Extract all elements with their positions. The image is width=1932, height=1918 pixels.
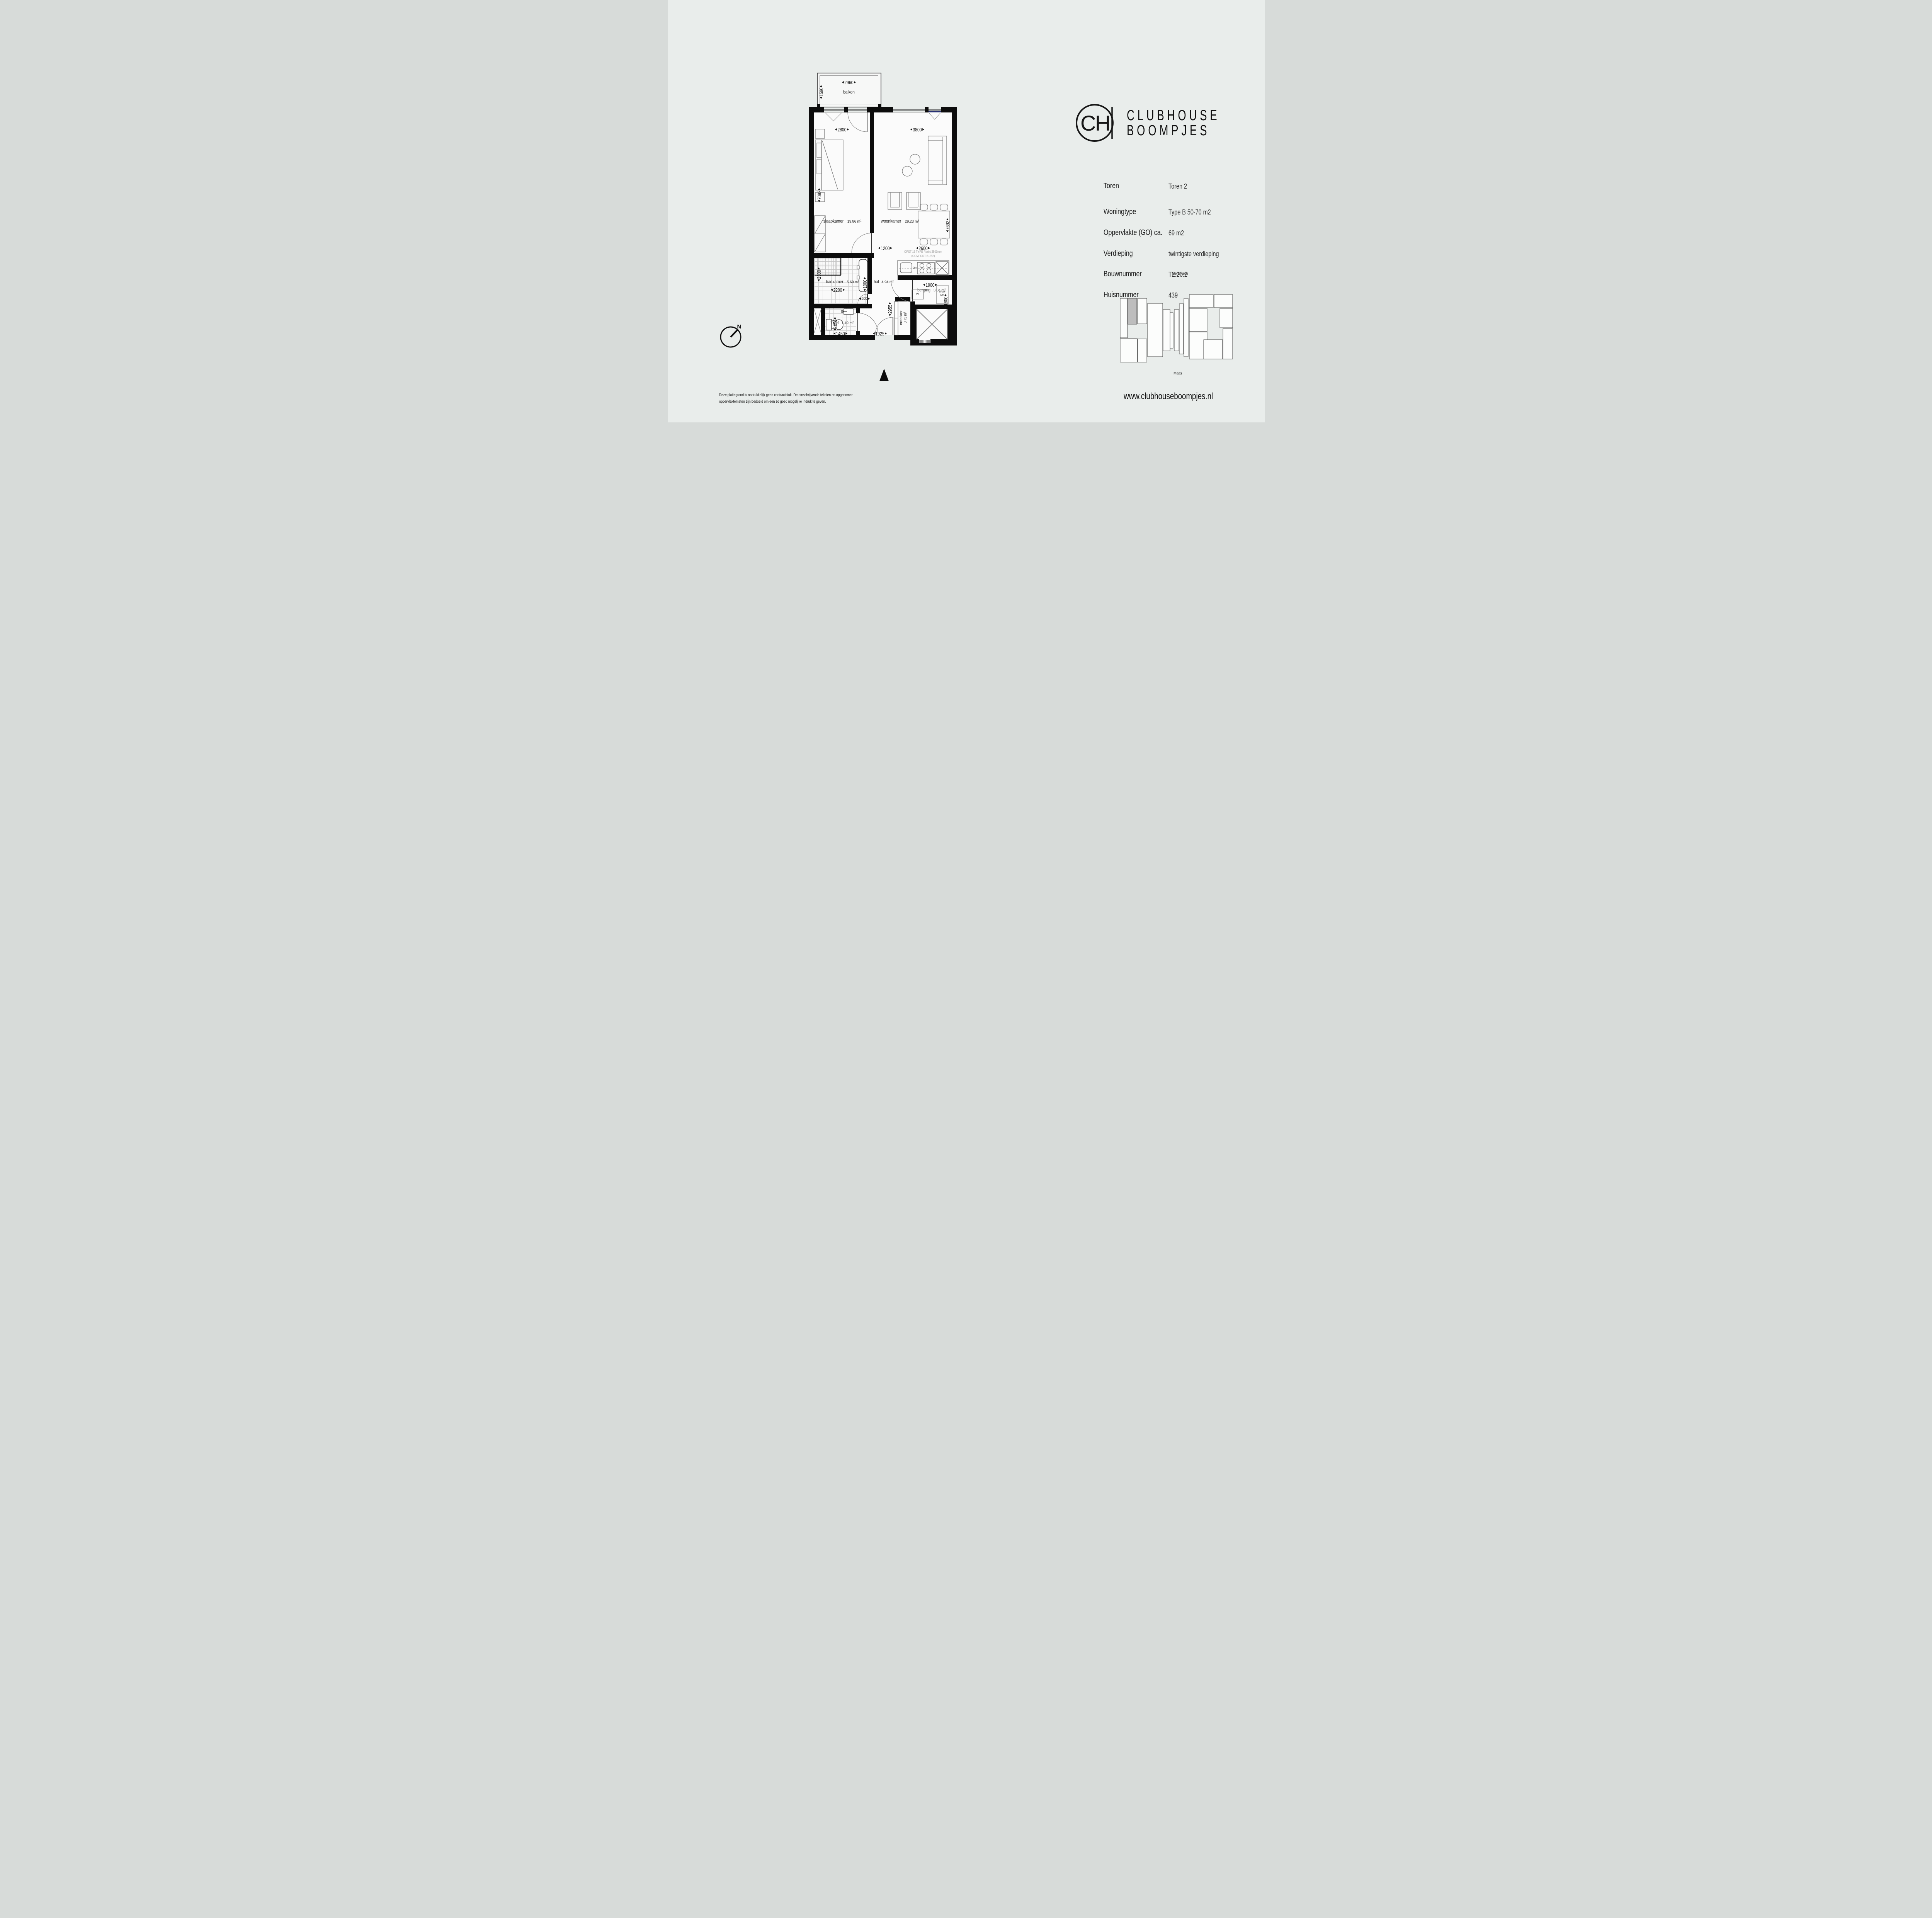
floorplan-sheet: balkon slaapkamer 19.86 m² woonkamer 29.… (668, 0, 1265, 422)
site-map (1118, 292, 1242, 363)
dim-berging-height: ◀1600▶ (941, 292, 948, 310)
brand-line1: CLUBHOUSE (1127, 108, 1220, 123)
dim-badkamer-height: ◀2300▶ (814, 265, 821, 283)
dim-hal-height: ◀2955▶ (885, 300, 893, 318)
logo-letter-h: H (1095, 111, 1111, 135)
dim-doorgang-height: ◀1000▶ (860, 275, 867, 293)
disclaimer-line2: oppervlaktematen zijn bedoeld om een zo … (719, 398, 826, 405)
sitemap-building (1170, 313, 1173, 348)
dim-hal-width: ◀1200▶ (876, 244, 894, 251)
info-label: Woningtype (1104, 208, 1136, 216)
sitemap-building (1204, 340, 1223, 359)
info-label: Oppervlakte (GO) ca. (1104, 228, 1162, 237)
website-url: www.clubhouseboompjes.nl (1099, 391, 1213, 402)
sitemap-building (1163, 310, 1170, 351)
sitemap-building (1189, 294, 1213, 308)
dim-keuken-width: ◀2600▶ (914, 244, 932, 251)
panel-divider (1098, 169, 1099, 331)
dim-balkon-width: ◀2960▶ (840, 78, 857, 85)
sitemap-building (1120, 339, 1137, 362)
sitemap-building (1189, 308, 1207, 332)
sitemap-building (1184, 298, 1188, 357)
dim-woonkamer-height: ◀7692▶ (943, 216, 950, 234)
logo-letter-c: C (1080, 111, 1096, 135)
sitemap-building (1174, 310, 1179, 351)
dim-entree-width: ◀1925▶ (871, 329, 888, 337)
info-value: Type B 50-70 m2 (1168, 208, 1211, 216)
brand-line2: BOOMPJES (1127, 123, 1210, 138)
info-value: 69 m2 (1168, 229, 1184, 237)
dim-slaapkamer-height: ◀7092▶ (815, 186, 822, 204)
dim-slaapkamer-width: ◀2800▶ (833, 125, 850, 133)
sitemap-building (1220, 308, 1233, 328)
dim-doorgang-width: ◀600▶ (857, 294, 871, 301)
disclaimer: Deze plattegrond is nadrukkelijk geen co… (719, 392, 887, 405)
compass-north-label: N (737, 323, 742, 330)
sitemap-building (1138, 298, 1147, 324)
dim-badkamer-width: ◀2200▶ (829, 286, 846, 293)
boiler-label: W (916, 293, 919, 296)
dim-woonkamer-width: ◀3800▶ (908, 125, 926, 133)
sitemap-building (1179, 304, 1184, 354)
brand-name: CLUBHOUSE BOOMPJES (1127, 108, 1265, 138)
info-value: twintigste verdieping (1168, 250, 1219, 258)
sitemap-unit-highlight (1128, 298, 1137, 324)
info-value: Toren 2 (1168, 182, 1187, 191)
info-label: Toren (1104, 182, 1119, 191)
sitemap-building (1120, 298, 1128, 338)
sitemap-building (1138, 339, 1147, 362)
dim-berging-width: ◀1900▶ (921, 281, 939, 288)
info-row-toren: Toren Toren 2 (1104, 182, 1235, 190)
clubhouse-logo-icon: C H (1070, 99, 1120, 149)
info-row-oppervlakte: Oppervlakte (GO) ca. 69 m2 (1104, 228, 1235, 237)
dim-toilet-width: ◀1450▶ (832, 329, 849, 337)
info-row-woningtype: Woningtype Type B 50-70 m2 (1104, 208, 1235, 216)
dim-balkon-depth: ◀1590▶ (816, 83, 824, 100)
sitemap-building (1148, 303, 1163, 357)
sitemap-building (1214, 294, 1233, 308)
info-row-bouwnummer: Bouwnummer T2.20.2 (1104, 270, 1235, 278)
info-label: Verdieping (1104, 249, 1133, 258)
info-label: Bouwnummer (1104, 270, 1142, 279)
info-row-verdieping: Verdieping twintigste verdieping (1104, 249, 1235, 258)
sitemap-street-bottom: Maas (1173, 371, 1184, 376)
sitemap-street-top: Hertekade (1172, 271, 1190, 276)
disclaimer-line1: Deze plattegrond is nadrukkelijk geen co… (719, 392, 853, 398)
sitemap-building (1223, 328, 1233, 359)
